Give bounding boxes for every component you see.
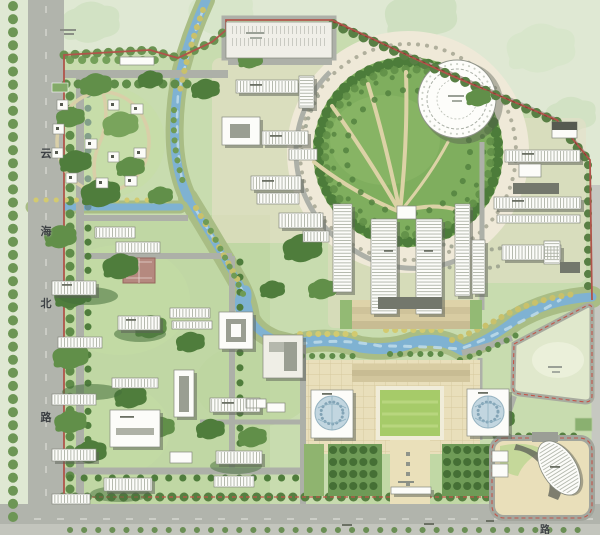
south-terraces — [352, 364, 470, 382]
west-road-label-char-2: 海 — [39, 223, 53, 239]
south-road-label: 路 — [540, 521, 550, 535]
west-road-label-char-4: 路 — [39, 409, 53, 425]
west-road-label-char-1: 云 — [39, 145, 53, 161]
gate-building — [391, 487, 431, 494]
site-plan-canvas: 云 海 北 路 路 — [0, 0, 600, 535]
site-plan-drawing — [0, 0, 600, 535]
west-road-label-char-3: 北 — [39, 295, 53, 311]
